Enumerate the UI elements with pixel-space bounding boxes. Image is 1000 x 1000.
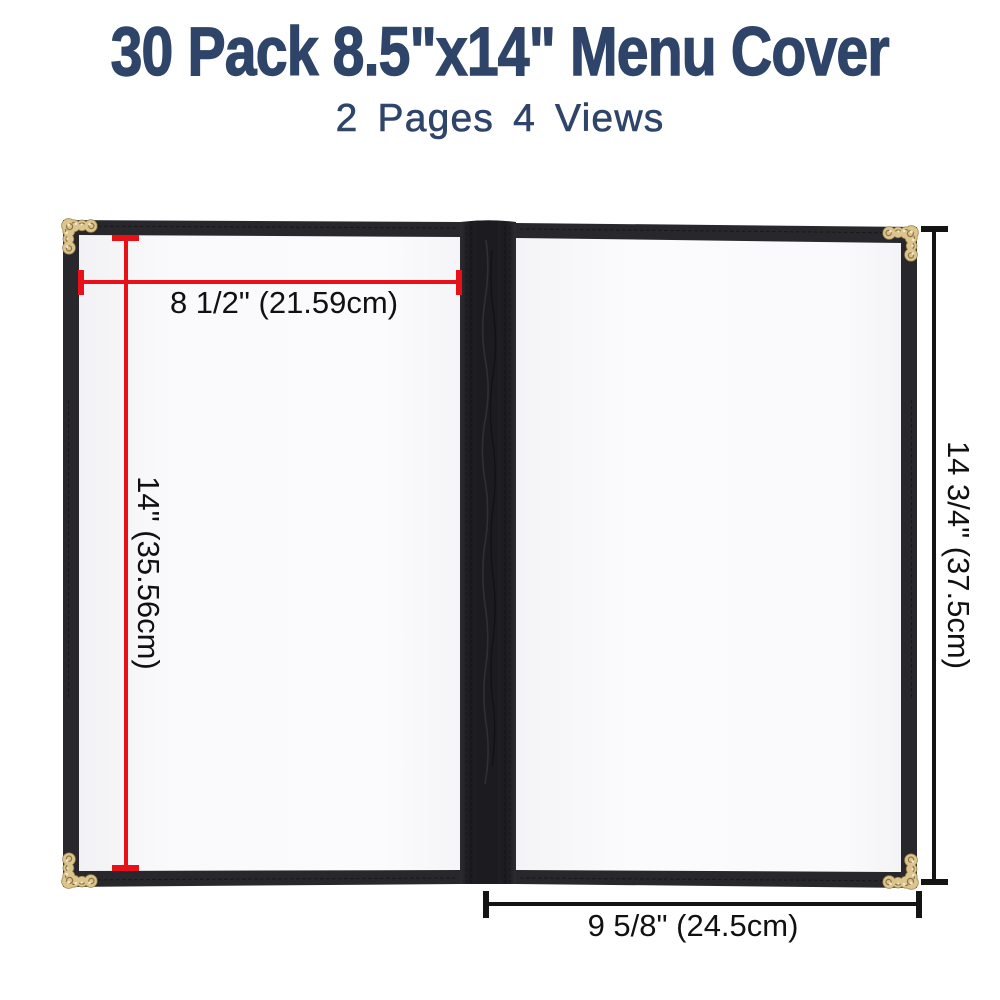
svg-text:9 5/8" (24.5cm): 9 5/8" (24.5cm) [588, 908, 799, 943]
svg-text:14 3/4" (37.5cm): 14 3/4" (37.5cm) [941, 441, 976, 669]
svg-text:8 1/2" (21.59cm): 8 1/2" (21.59cm) [170, 285, 398, 320]
svg-text:14" (35.56cm): 14" (35.56cm) [131, 476, 166, 670]
